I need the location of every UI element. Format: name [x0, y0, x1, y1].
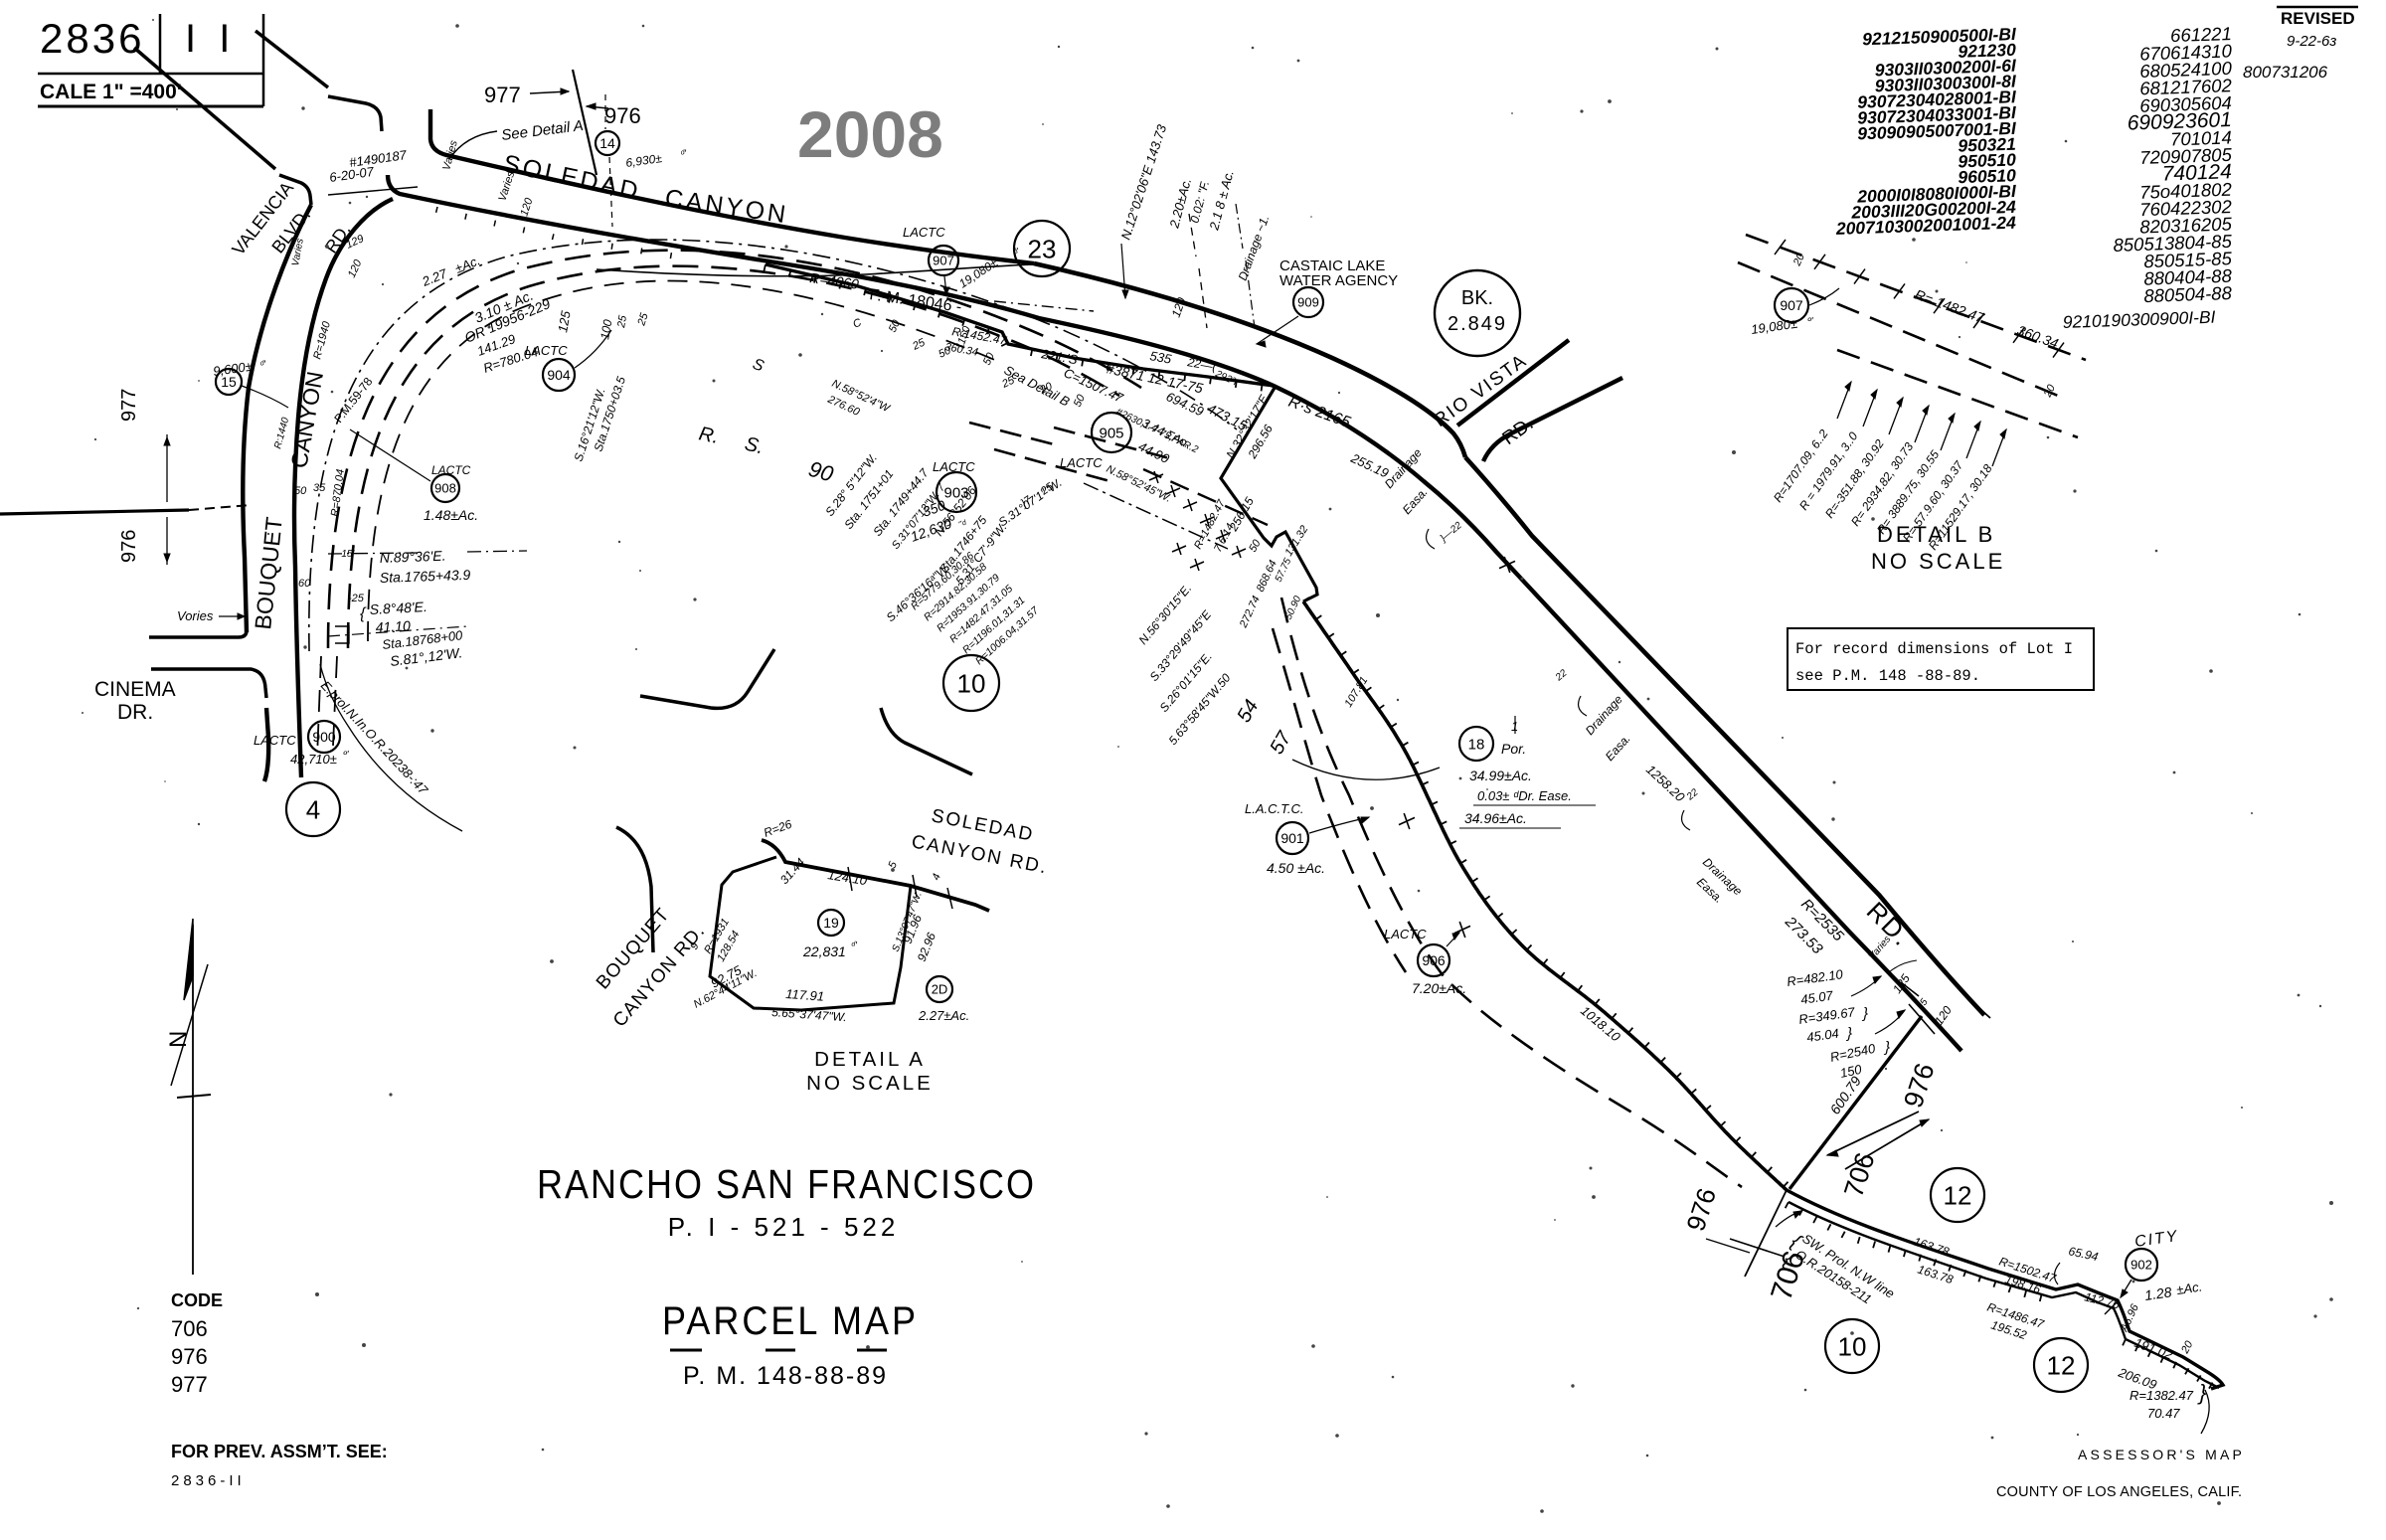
- svg-text:880504-88: 880504-88: [2143, 282, 2233, 306]
- svg-text:P. I - 521 - 522: P. I - 521 - 522: [668, 1212, 900, 1242]
- svg-text:BK.: BK.: [1461, 287, 1493, 309]
- svg-text:FOR PREV. ASSM’T. SEE:: FOR PREV. ASSM’T. SEE:: [171, 1442, 388, 1461]
- svg-text:CINEMA: CINEMA: [94, 678, 176, 701]
- svg-text:S.8°48'E.: S.8°48'E.: [369, 599, 427, 617]
- svg-text:2.27±Ac.: 2.27±Ac.: [918, 1008, 969, 1023]
- svg-text:15: 15: [221, 374, 237, 390]
- svg-text:-25: -25: [348, 593, 365, 604]
- svg-text:Sta.1765+43.9: Sta.1765+43.9: [380, 567, 471, 586]
- svg-text:12: 12: [2047, 1350, 2076, 1380]
- svg-text:14: 14: [599, 135, 615, 151]
- svg-text:977: 977: [118, 389, 140, 422]
- svg-text:976: 976: [118, 530, 140, 563]
- svg-text:18: 18: [1468, 736, 1485, 753]
- svg-text:906: 906: [1422, 952, 1446, 968]
- svg-text:904: 904: [547, 367, 571, 383]
- svg-text:2D: 2D: [932, 982, 948, 997]
- svg-text:LACTC: LACTC: [525, 343, 568, 358]
- svg-text:19: 19: [823, 915, 839, 931]
- svg-text:L.A.C.T.C.: L.A.C.T.C.: [1245, 801, 1303, 816]
- svg-text:2008: 2008: [797, 97, 943, 171]
- svg-text:70.47: 70.47: [2147, 1406, 2180, 1421]
- svg-text:LACTC: LACTC: [903, 225, 945, 240]
- svg-text:976: 976: [171, 1344, 208, 1369]
- svg-text:7.20±Ac.: 7.20±Ac.: [1412, 980, 1466, 996]
- svg-text:DR.: DR.: [117, 701, 153, 724]
- svg-text:909: 909: [1297, 295, 1319, 310]
- svg-text:10: 10: [1838, 1331, 1867, 1361]
- svg-text:905: 905: [1099, 425, 1123, 441]
- svg-text:4.50 ±Ac.: 4.50 ±Ac.: [1267, 860, 1325, 876]
- svg-text:}: }: [1845, 1025, 1852, 1042]
- svg-text:Por.: Por.: [1501, 741, 1526, 757]
- svg-text:see P.M. 148 -88-89.: see P.M. 148 -88-89.: [1795, 667, 1980, 685]
- svg-text:R=1382.47: R=1382.47: [2130, 1388, 2194, 1403]
- svg-text:34.99±Ac.: 34.99±Ac.: [1469, 768, 1532, 783]
- svg-text:}: }: [1861, 1005, 1868, 1022]
- svg-text:LACTC: LACTC: [254, 733, 296, 748]
- svg-text:For record dimensions of Lot I: For record dimensions of Lot I: [1795, 640, 2073, 658]
- svg-text:977: 977: [484, 83, 521, 107]
- svg-text:903: 903: [943, 484, 968, 501]
- svg-text:907: 907: [933, 254, 954, 268]
- svg-text:706: 706: [171, 1316, 208, 1341]
- svg-text:800731206: 800731206: [2243, 63, 2328, 82]
- svg-text:CALE 1" =400': CALE 1" =400': [40, 81, 182, 103]
- svg-text:22,831: 22,831: [802, 943, 846, 959]
- svg-text:COUNTY OF LOS ANGELES, CALIF.: COUNTY OF LOS ANGELES, CALIF.: [1996, 1484, 2242, 1500]
- svg-text:4: 4: [306, 794, 320, 824]
- svg-text:RANCHO SAN FRANCISCO: RANCHO SAN FRANCISCO: [537, 1162, 1036, 1207]
- svg-text:LACTC: LACTC: [1384, 927, 1427, 941]
- svg-text:0.03± ᵈDr. Ease.: 0.03± ᵈDr. Ease.: [1477, 788, 1572, 803]
- svg-text:12: 12: [1944, 1180, 1972, 1210]
- svg-text:976: 976: [604, 103, 641, 128]
- svg-text:907: 907: [1780, 297, 1803, 313]
- svg-text:2836: 2836: [40, 15, 144, 62]
- svg-text:P. M. 148-88-89: P. M. 148-88-89: [683, 1362, 888, 1390]
- svg-text:901: 901: [1280, 830, 1304, 846]
- svg-text:CODE: CODE: [171, 1290, 223, 1310]
- svg-text:N.89°36'E.: N.89°36'E.: [380, 548, 446, 566]
- svg-text:10: 10: [957, 668, 986, 698]
- svg-text:900: 900: [312, 729, 336, 745]
- svg-text:I I: I I: [185, 17, 236, 61]
- svg-text:DETAIL A: DETAIL A: [814, 1048, 926, 1071]
- svg-text:WATER AGENCY: WATER AGENCY: [1279, 272, 1398, 289]
- svg-text:34.96±Ac.: 34.96±Ac.: [1464, 810, 1527, 826]
- svg-text:REVISED: REVISED: [2281, 9, 2355, 28]
- svg-text:35: 35: [313, 482, 326, 494]
- svg-text:50: 50: [294, 485, 307, 497]
- svg-text:-15': -15': [338, 549, 355, 560]
- svg-text:902: 902: [2130, 1258, 2152, 1273]
- svg-text:9-22-6з: 9-22-6з: [2287, 33, 2336, 50]
- svg-text:2.849: 2.849: [1448, 313, 1507, 335]
- svg-text:60: 60: [298, 578, 311, 590]
- svg-text:NO SCALE: NO SCALE: [806, 1072, 934, 1095]
- svg-text:23: 23: [1028, 234, 1057, 263]
- svg-text:2836-II: 2836-II: [171, 1472, 246, 1489]
- svg-text:ASSESSOR'S MAP: ASSESSOR'S MAP: [2078, 1447, 2245, 1462]
- svg-text:1.48±Ac.: 1.48±Ac.: [424, 507, 478, 523]
- svg-text:}: }: [1883, 1039, 1890, 1056]
- svg-text:DETAIL B: DETAIL B: [1877, 522, 1995, 547]
- svg-text:117.91: 117.91: [785, 986, 825, 1004]
- svg-text:PARCEL MAP: PARCEL MAP: [662, 1299, 919, 1343]
- svg-text:42,710±: 42,710±: [290, 752, 337, 767]
- svg-text:N: N: [165, 1031, 192, 1048]
- svg-text:977: 977: [171, 1372, 208, 1397]
- svg-text:NO SCALE: NO SCALE: [1871, 549, 2005, 574]
- svg-text:LACTC: LACTC: [1060, 455, 1103, 470]
- svg-text:Vories: Vories: [177, 608, 214, 623]
- svg-text:908: 908: [434, 481, 456, 496]
